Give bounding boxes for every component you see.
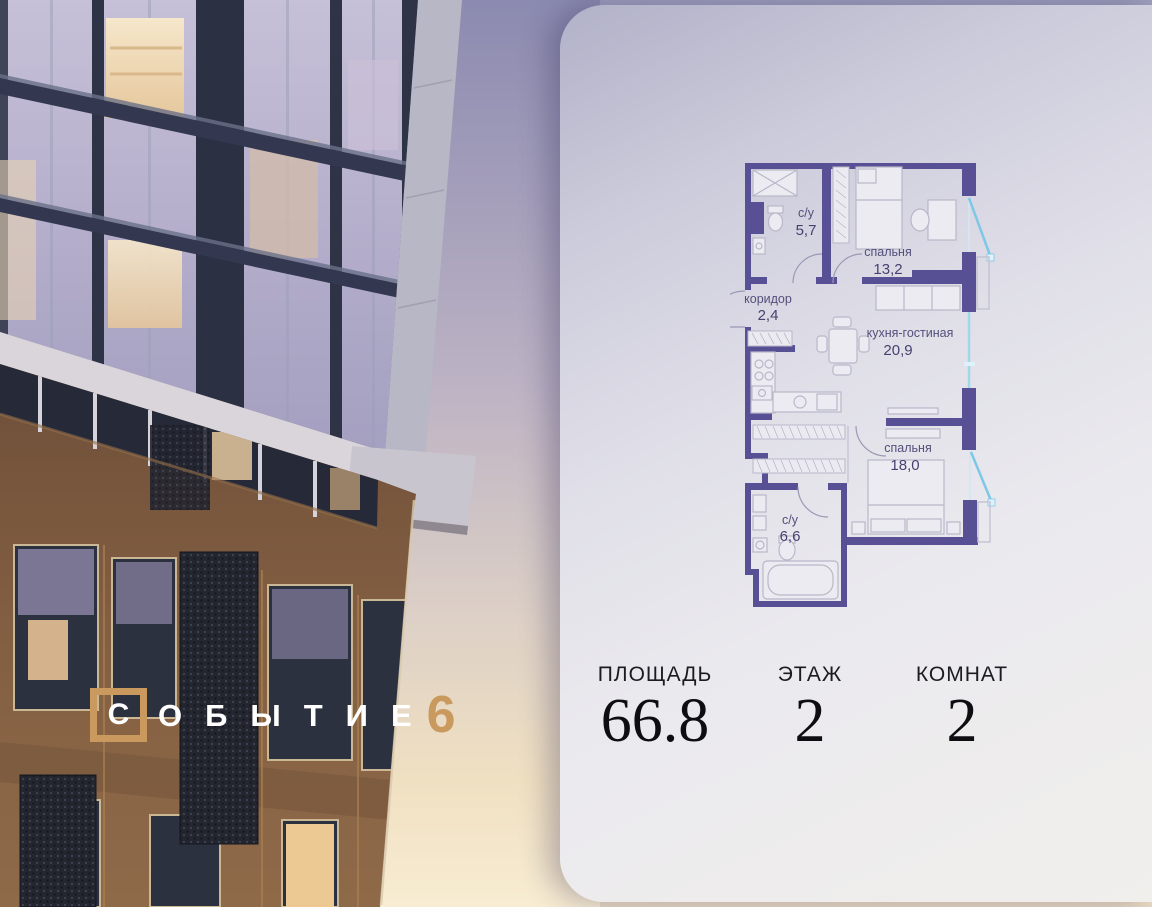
stat-area-label: ПЛОЩАДЬ (598, 663, 713, 687)
logo-letter-c: С (108, 700, 130, 730)
room-area: 6,6 (780, 528, 801, 545)
stat-floor: ЭТАЖ 2 (778, 663, 843, 752)
stat-floor-value: 2 (778, 690, 843, 752)
building-render (0, 0, 600, 907)
stat-rooms-label: КОМНАТ (916, 663, 1008, 687)
room-label: с/у (782, 513, 799, 527)
project-logo: С ОБЫТИЕ 6 (90, 688, 456, 742)
perforated-panel (20, 775, 96, 907)
stat-rooms: КОМНАТ 2 (916, 663, 1008, 752)
stat-area: ПЛОЩАДЬ 66.8 (598, 663, 713, 752)
building-photo: С ОБЫТИЕ 6 (0, 0, 600, 907)
floorplan: с/у 5,7 спальня 13,2 коридор 2,4 кухня-г… (730, 150, 1010, 620)
room-label: коридор (744, 292, 792, 306)
apartment-stats: ПЛОЩАДЬ 66.8 ЭТАЖ 2 КОМНАТ 2 (560, 663, 1152, 783)
apartment-card: с/у 5,7 спальня 13,2 коридор 2,4 кухня-г… (560, 5, 1152, 902)
room-label: спальня (884, 441, 931, 455)
room-area: 13,2 (873, 261, 902, 278)
room-label: спальня (864, 245, 911, 259)
stat-floor-label: ЭТАЖ (778, 663, 843, 687)
room-label: с/у (798, 206, 815, 220)
room-area: 20,9 (883, 342, 912, 359)
logo-frame: С (90, 688, 147, 742)
room-area: 5,7 (796, 222, 817, 239)
room-area: 18,0 (890, 457, 919, 474)
room-area: 2,4 (758, 307, 779, 324)
lit-window (28, 620, 68, 680)
stat-area-value: 66.8 (598, 690, 713, 752)
room-label: кухня-гостиная (867, 326, 954, 340)
plan-windows (964, 198, 995, 542)
stat-rooms-value: 2 (916, 690, 1008, 752)
logo-name: ОБЫТИЕ (158, 700, 435, 731)
lit-window (286, 824, 334, 907)
logo-number: 6 (427, 693, 456, 737)
